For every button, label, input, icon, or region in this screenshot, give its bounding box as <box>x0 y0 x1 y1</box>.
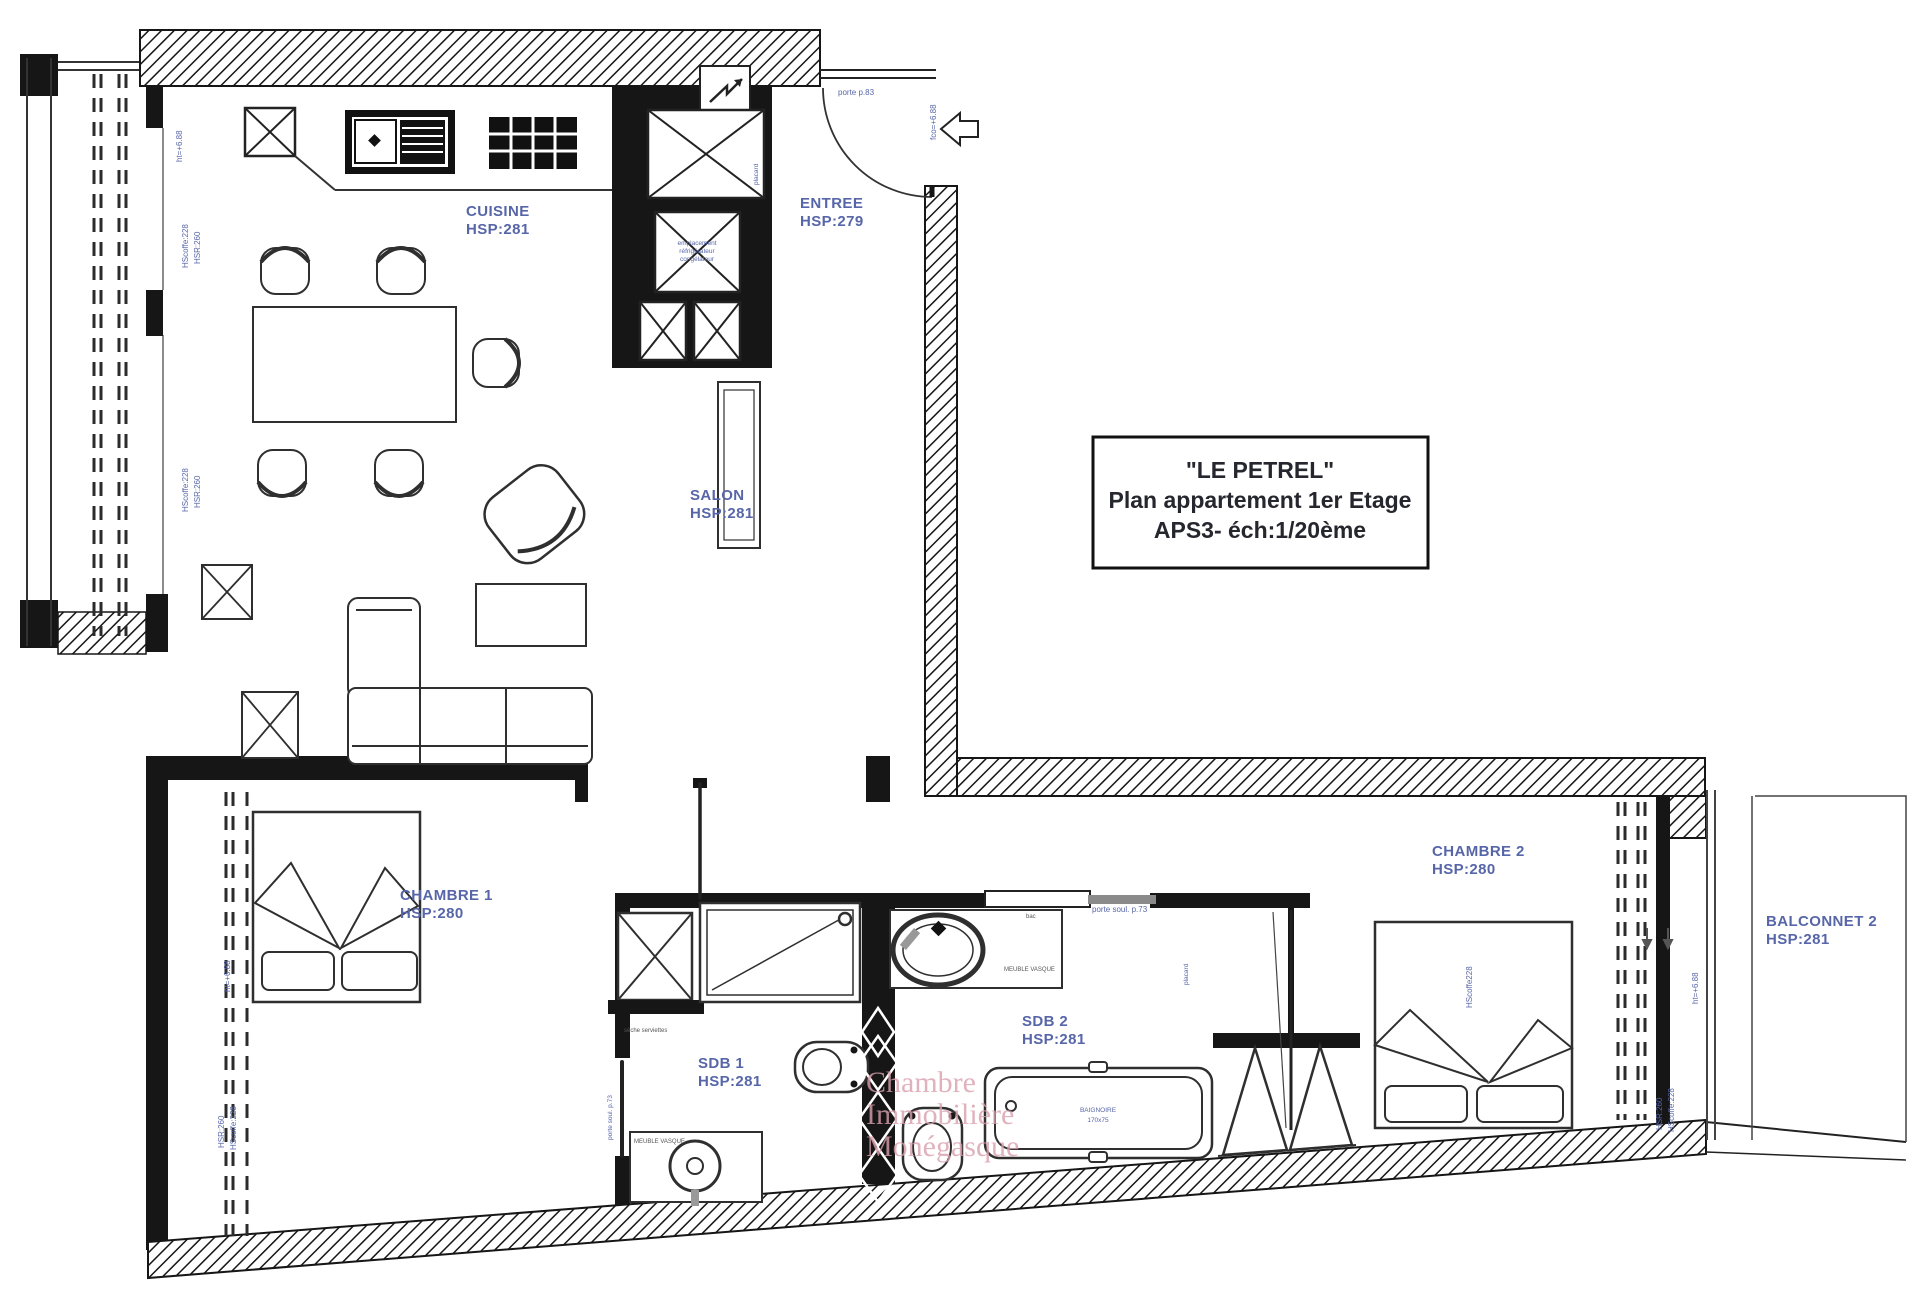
floor-plan-page: Chambre Immobilière Monégasque "LE PETRE… <box>0 0 1920 1293</box>
watermark-text: Immobilière <box>866 1098 1014 1131</box>
room-label-cuisine: CUISINE <box>466 203 530 220</box>
label-hsr-3: HSR:260 <box>217 1115 226 1148</box>
label-hscoffe-bed2: HScoffe228 <box>1465 966 1474 1008</box>
label-hscoffe-3: HScoffe:228 <box>229 1106 238 1150</box>
balconnet2 <box>1707 790 1906 1142</box>
label-ht-right: ht=+6.88 <box>1691 972 1700 1004</box>
dining-table <box>253 307 456 422</box>
room-hsp-sdb1: HSP:281 <box>698 1073 762 1090</box>
room-label-salon: SALON <box>690 487 745 504</box>
coffee-table <box>476 584 586 646</box>
label-baignoire-2: 170x75 <box>1087 1117 1109 1124</box>
chambre1-furniture <box>226 792 420 1236</box>
room-hsp-balconnet2: HSP:281 <box>1766 931 1830 948</box>
label-hsr-1: HSR:260 <box>193 231 202 264</box>
room-hsp-entree: HSP:279 <box>800 213 864 230</box>
window-dashes-chambre2 <box>1618 802 1645 1120</box>
cooktop <box>489 117 577 169</box>
label-hscoffe-1: HScoffe:228 <box>181 224 190 268</box>
label-hscoffe-2: HScoffe:228 <box>181 468 190 512</box>
room-hsp-salon: HSP:281 <box>690 505 754 522</box>
floor-plan-svg: Chambre Immobilière Monégasque "LE PETRE… <box>0 0 1920 1293</box>
watermark-text: Monégasque <box>866 1130 1019 1163</box>
title-line-2: Plan appartement 1er Etage <box>1109 487 1412 513</box>
room-hsp-cuisine: HSP:281 <box>466 221 530 238</box>
room-label-sdb2: SDB 2 <box>1022 1013 1068 1030</box>
title-line-3: APS3- éch:1/20ème <box>1154 517 1366 543</box>
chair <box>261 248 309 294</box>
radiator-box-left <box>202 565 252 619</box>
room-hsp-sdb2: HSP:281 <box>1022 1031 1086 1048</box>
chair <box>375 450 423 496</box>
shower-sdb1 <box>700 903 860 1002</box>
label-hsr-4: HSR:260 <box>1655 1097 1664 1130</box>
balcony-salon <box>20 54 163 654</box>
label-ht-left: ht=+6.88 <box>175 130 184 162</box>
fridge-box <box>245 108 295 156</box>
label-fco: fco=+6.88 <box>929 104 938 140</box>
room-label-chambre2: CHAMBRE 2 <box>1432 843 1525 860</box>
label-fridge-3: congélateur <box>680 256 715 263</box>
counter-diagonal <box>295 156 335 190</box>
room-label-chambre1: CHAMBRE 1 <box>400 887 493 904</box>
room-label-balconnet2: BALCONNET 2 <box>1766 913 1877 930</box>
chair <box>258 450 306 496</box>
label-bac: bac <box>1026 914 1036 920</box>
label-placard-2: placard <box>1183 963 1190 985</box>
watermark-text: Chambre <box>866 1066 976 1099</box>
kitchen-fixtures <box>245 108 612 190</box>
room-hsp-chambre2: HSP:280 <box>1432 861 1496 878</box>
shaft-box-4 <box>694 302 740 360</box>
kitchen-sink <box>345 110 455 174</box>
room-label-entree: ENTREE <box>800 195 863 212</box>
chair <box>377 248 425 294</box>
shaft-box-3 <box>640 302 686 360</box>
room-hsp-chambre1: HSP:280 <box>400 905 464 922</box>
toilet-sdb1 <box>795 1042 868 1092</box>
pillow <box>342 952 417 990</box>
label-porte-sdb2: porte soul. p.73 <box>1092 905 1148 914</box>
title-line-1: "LE PETREL" <box>1186 457 1334 483</box>
radiator-box-sofa <box>242 692 298 758</box>
shaft-box-1 <box>648 110 764 198</box>
entry-arrow-icon <box>941 113 978 145</box>
pillow <box>1477 1086 1563 1122</box>
label-seche-serviettes: sèche serviettes <box>624 1028 667 1034</box>
washbasin-sdb2 <box>890 910 1062 988</box>
label-porte-entree: porte p.83 <box>838 88 875 97</box>
label-fridge-2: réfrigérateur <box>679 248 715 255</box>
label-meuble-vasque-2: MEUBLE VASQUE <box>1004 967 1055 973</box>
towel-dryer-box <box>608 913 704 1014</box>
room-label-sdb1: SDB 1 <box>698 1055 744 1072</box>
service-shafts <box>612 66 772 368</box>
hallway-door <box>693 778 707 898</box>
pillow <box>262 952 334 990</box>
label-placard-1: placard <box>753 163 760 185</box>
armchair <box>476 456 593 572</box>
pillow <box>1385 1086 1467 1122</box>
label-hsr-2: HSR:260 <box>193 475 202 508</box>
label-hscoffe-4: HScoffe:228 <box>1667 1088 1676 1132</box>
window-dashes-chambre1 <box>226 792 247 1236</box>
window-dashes-salon <box>94 74 126 636</box>
entry-door <box>823 88 932 197</box>
title-block: "LE PETREL" Plan appartement 1er Etage A… <box>1093 437 1428 568</box>
label-ht-chambre1: ht=+6.88 <box>223 960 232 992</box>
buffet-cabinet <box>718 382 760 548</box>
label-porte-sdb1: porte soul. p.73 <box>607 1095 614 1140</box>
breaker-icon <box>700 66 750 110</box>
chair <box>473 339 519 387</box>
label-meuble-vasque-1: MEUBLE VASQUE <box>634 1139 685 1145</box>
label-baignoire-1: BAIGNOIRE <box>1080 1107 1117 1114</box>
wardrobe-sdb2 <box>1218 1046 1356 1156</box>
label-fridge-1: emplacement <box>677 240 716 247</box>
